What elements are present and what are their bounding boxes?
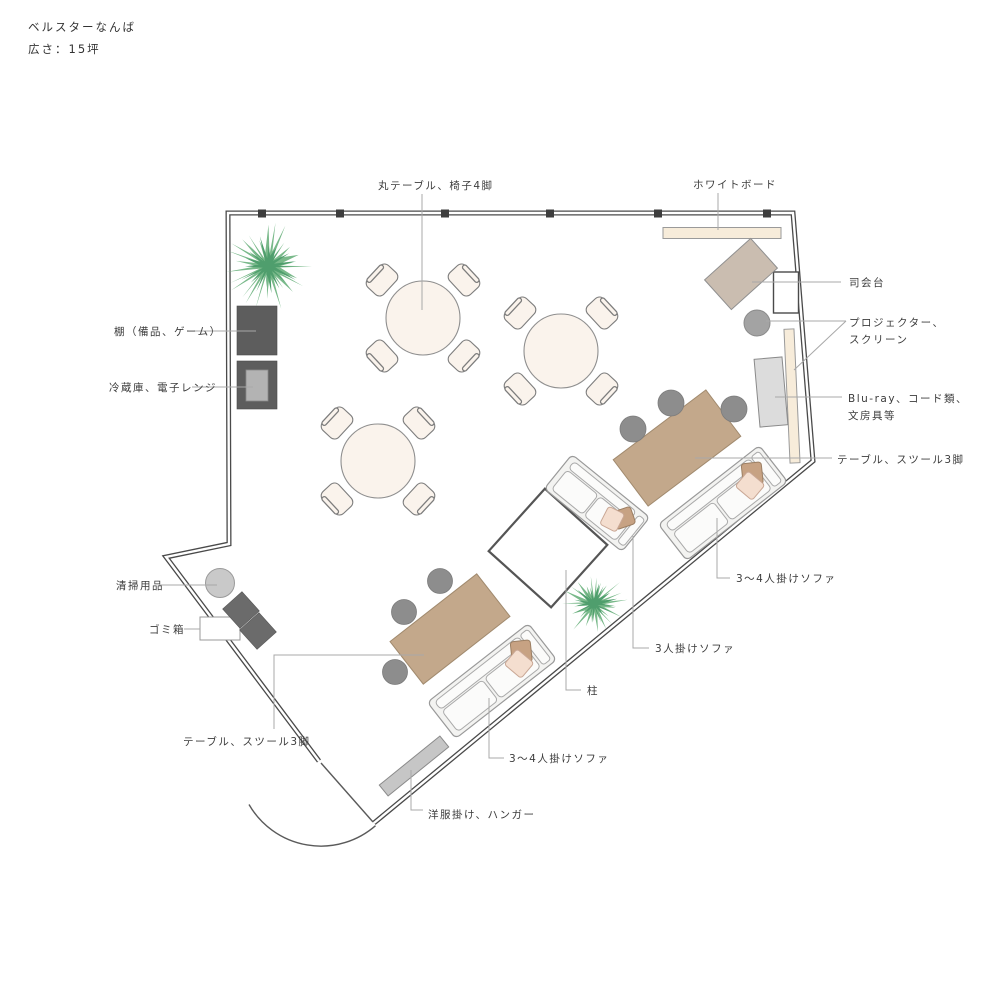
chair	[401, 404, 438, 441]
chair	[501, 371, 538, 408]
label-table-stools-right: テーブル、スツール3脚	[837, 453, 965, 466]
label-whiteboard: ホワイトボード	[693, 179, 777, 191]
round-table-1	[386, 281, 460, 355]
chair	[318, 481, 355, 518]
chair	[363, 261, 400, 298]
screen	[784, 329, 800, 463]
cleaning-supplies	[206, 569, 235, 598]
label-round-table: 丸テーブル、椅子4脚	[378, 179, 494, 192]
label-rack: 洋服掛け、ハンガー	[428, 808, 535, 821]
label-mc-stand: 司会台	[849, 276, 885, 289]
label-projector-1: プロジェクター、	[849, 317, 944, 329]
mc-stand	[705, 238, 778, 309]
label-trash: ゴミ箱	[149, 623, 185, 636]
round-table-2	[524, 314, 598, 388]
label-sofa-34-right: 3〜4人掛けソファ	[736, 572, 836, 585]
label-sofa-3: 3人掛けソファ	[655, 642, 735, 655]
chair	[318, 404, 355, 441]
wall-column-notch	[774, 272, 799, 313]
floor-plan-page: ベルスターなんば 広さ：15坪 丸テーブル、椅子4脚 ホワイトボード 司会台 プ…	[0, 0, 1000, 1000]
label-table-stools-bottom: テーブル、スツール3脚	[183, 735, 311, 748]
chair	[363, 338, 400, 375]
whiteboard	[663, 228, 781, 239]
floor-plan-svg: ベルスターなんば 広さ：15坪 丸テーブル、椅子4脚 ホワイトボード 司会台 プ…	[0, 0, 1000, 1000]
chair	[401, 481, 438, 518]
plant-top-left	[226, 223, 312, 309]
projector	[744, 310, 770, 336]
label-projector-2: スクリーン	[849, 334, 908, 346]
plan-size: 広さ：15坪	[28, 42, 101, 56]
label-cleaning: 清掃用品	[116, 579, 164, 592]
label-sofa-34-bottom: 3〜4人掛けソファ	[509, 752, 609, 765]
door-swing	[249, 763, 376, 846]
chair	[446, 338, 483, 375]
chair	[446, 261, 483, 298]
fridge-microwave	[237, 361, 277, 409]
label-bluray-2: 文房具等	[848, 409, 896, 422]
plan-title: ベルスターなんば	[28, 20, 136, 34]
label-bluray-1: Blu-ray、コード類、	[848, 393, 968, 405]
chair	[584, 371, 621, 408]
label-fridge: 冷蔵庫、電子レンジ	[109, 381, 217, 394]
chair	[501, 294, 538, 331]
bluray-cabinet	[754, 357, 788, 427]
label-shelf: 棚（備品、ゲーム）	[114, 325, 222, 338]
round-table-3	[341, 424, 415, 498]
chair	[584, 294, 621, 331]
label-pillar: 柱	[587, 684, 599, 697]
